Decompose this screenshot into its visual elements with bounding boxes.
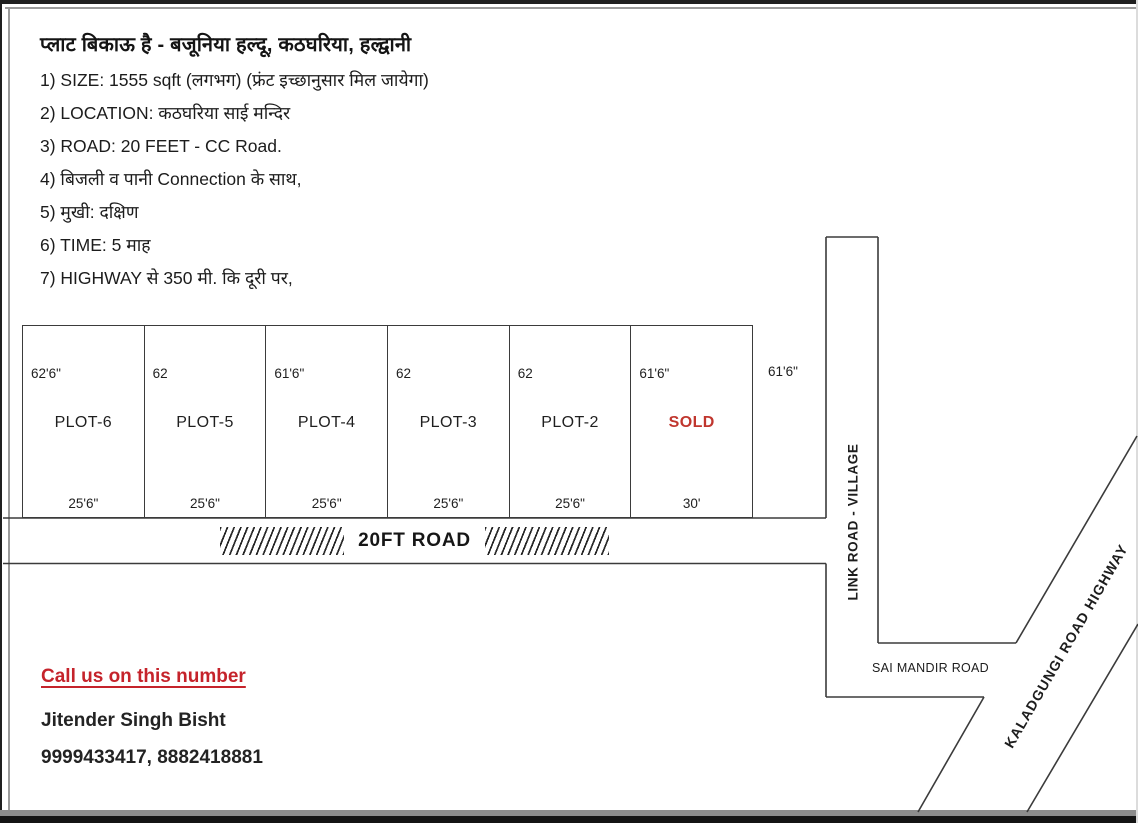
plot6-label: PLOT-6 [23, 414, 144, 432]
plot6-depth: 62'6" [31, 366, 61, 381]
details-list: 1) SIZE: 1555 sqft (लगभग) (फ्रंट इच्छानु… [40, 68, 429, 299]
plot4-label: PLOT-4 [266, 414, 387, 432]
sold-badge: SOLD [631, 414, 752, 432]
link-road-label: LINK ROAD - VILLAGE [846, 444, 861, 601]
road-hatch-left [220, 527, 344, 555]
page-title: प्लाट बिकाऊ है - बजूनिया हल्दू, कठघरिया,… [40, 30, 411, 57]
highway-label: KALADGUNGI ROAD HIGHWAY [1001, 541, 1131, 750]
plot4-depth: 61'6" [274, 366, 304, 381]
plot5-frontage: 25'6" [145, 496, 266, 511]
plot3-frontage: 25'6" [388, 496, 509, 511]
sai-mandir-road-label: SAI MANDIR ROAD [872, 661, 989, 675]
document-border-top [5, 7, 1138, 9]
plot2-depth: 62 [518, 366, 533, 381]
plot-cell-sold: 61'6" SOLD 30' [630, 326, 752, 517]
front-road-band: 20FT ROAD [3, 519, 826, 563]
contact-heading: Call us on this number [41, 666, 246, 688]
plot3-label: PLOT-3 [388, 414, 509, 432]
detail-facing: 5) मुखी: दक्षिण [40, 200, 429, 233]
detail-highway-distance: 7) HIGHWAY से 350 मी. कि दूरी पर, [40, 266, 429, 299]
front-road-label: 20FT ROAD [358, 530, 471, 552]
plot3-depth: 62 [396, 366, 411, 381]
plot5-depth: 62 [153, 366, 168, 381]
plot-cell-5: 62 PLOT-5 25'6" [144, 326, 266, 517]
plot6-frontage: 25'6" [23, 496, 144, 511]
sold-plot-frontage: 30' [631, 496, 752, 511]
plot4-frontage: 25'6" [266, 496, 387, 511]
sold-plot-depth: 61'6" [639, 366, 669, 381]
plot5-label: PLOT-5 [145, 414, 266, 432]
scan-edge-left [0, 0, 2, 823]
detail-time: 6) TIME: 5 माह [40, 233, 429, 266]
road-hatch-right [485, 527, 609, 555]
scan-edge-top [0, 0, 1138, 4]
document-border-left [8, 7, 10, 811]
detail-road: 3) ROAD: 20 FEET - CC Road. [40, 134, 429, 167]
plot2-label: PLOT-2 [510, 414, 631, 432]
plot-sale-flyer: प्लाट बिकाऊ है - बजूनिया हल्दू, कठघरिया,… [0, 0, 1138, 823]
plot-cell-2: 62 PLOT-2 25'6" [509, 326, 631, 517]
contact-phone-numbers: 9999433417, 8882418881 [41, 747, 263, 769]
detail-size: 1) SIZE: 1555 sqft (लगभग) (फ्रंट इच्छानु… [40, 68, 429, 101]
plot-cell-4: 61'6" PLOT-4 25'6" [265, 326, 387, 517]
corner-plot-depth: 61'6" [768, 364, 798, 379]
contact-name: Jitender Singh Bisht [41, 710, 226, 732]
plot-cell-3: 62 PLOT-3 25'6" [387, 326, 509, 517]
plot-row: 62'6" PLOT-6 25'6" 62 PLOT-5 25'6" 61'6"… [22, 325, 753, 518]
detail-location: 2) LOCATION: कठघरिया साई मन्दिर [40, 101, 429, 134]
scan-edge-bottom [0, 816, 1138, 823]
plot-cell-6: 62'6" PLOT-6 25'6" [23, 326, 144, 517]
plot2-frontage: 25'6" [510, 496, 631, 511]
detail-connections: 4) बिजली व पानी Connection के साथ, [40, 167, 429, 200]
